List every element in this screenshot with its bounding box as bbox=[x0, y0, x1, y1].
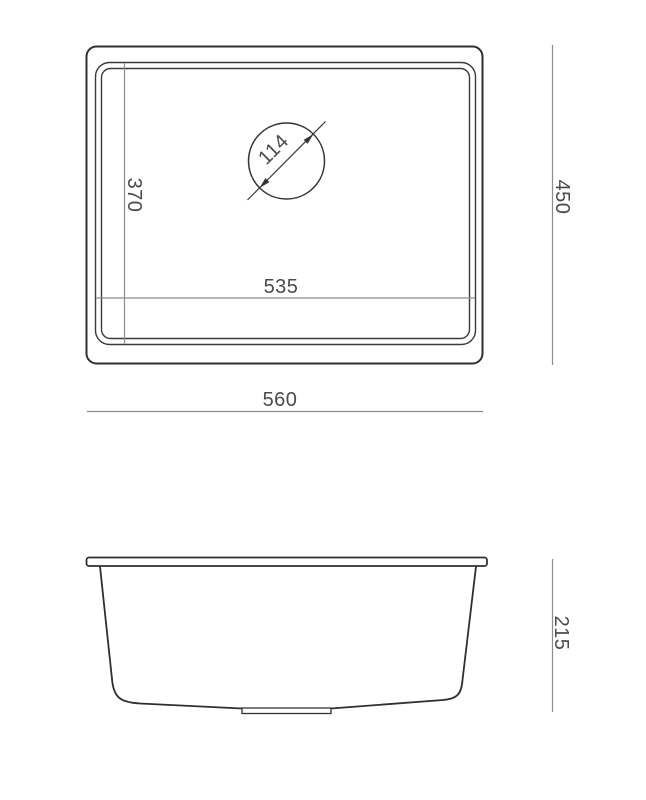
side-view-rim bbox=[87, 558, 488, 567]
side-view: 215 bbox=[87, 558, 573, 714]
height-label: 215 bbox=[550, 616, 572, 651]
overall-depth-label: 450 bbox=[551, 180, 573, 215]
bowl-width-label: 535 bbox=[264, 276, 299, 298]
top-view-rim-outer-line bbox=[96, 63, 476, 345]
overall-width-label: 560 bbox=[263, 389, 298, 411]
top-view: 370 535 114 450 560 bbox=[87, 45, 574, 412]
bowl-depth-label: 370 bbox=[123, 178, 145, 213]
side-view-bowl-outline bbox=[100, 567, 476, 709]
drawing-canvas: 370 535 114 450 560 bbox=[0, 0, 646, 800]
sink-technical-drawing: 370 535 114 450 560 bbox=[0, 0, 646, 800]
side-view-drain-boss bbox=[242, 708, 331, 714]
drain-diameter-label: 114 bbox=[254, 130, 293, 169]
